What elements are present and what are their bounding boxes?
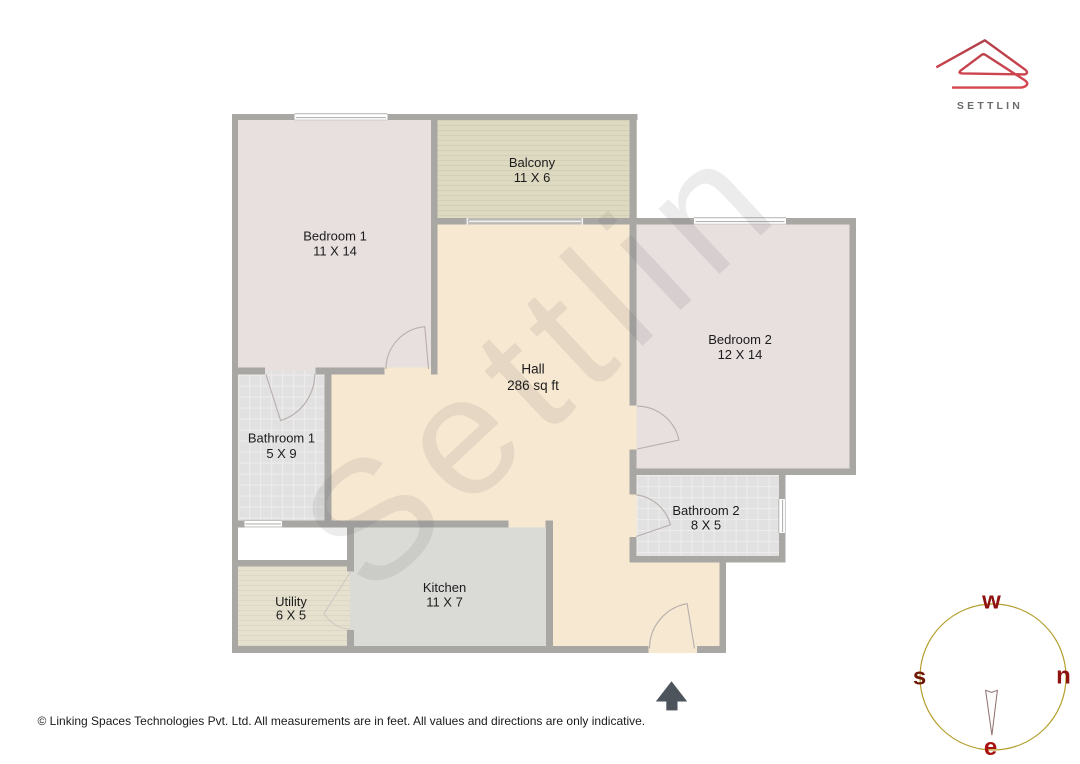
svg-text:SETTLIN: SETTLIN	[957, 100, 1023, 112]
svg-text:11 X 14: 11 X 14	[313, 244, 357, 259]
svg-text:Hall: Hall	[521, 362, 544, 377]
svg-text:© Linking Spaces Technologies: © Linking Spaces Technologies Pvt. Ltd. …	[38, 714, 646, 728]
svg-text:11 X 7: 11 X 7	[426, 595, 463, 610]
svg-text:Balcony: Balcony	[509, 155, 556, 170]
svg-text:Bathroom 2: Bathroom 2	[672, 503, 739, 518]
svg-text:8 X 5: 8 X 5	[691, 518, 721, 533]
svg-text:w: w	[981, 588, 1001, 615]
svg-text:5 X 9: 5 X 9	[266, 446, 296, 461]
svg-text:Bedroom 2: Bedroom 2	[708, 332, 772, 347]
svg-text:Bedroom 1: Bedroom 1	[303, 229, 367, 244]
svg-text:e: e	[984, 734, 997, 761]
svg-text:12 X 14: 12 X 14	[718, 347, 763, 362]
svg-text:Bathroom 1: Bathroom 1	[248, 430, 315, 445]
svg-text:n: n	[1056, 663, 1071, 690]
svg-text:s: s	[913, 664, 926, 691]
svg-text:6 X 5: 6 X 5	[276, 608, 306, 623]
svg-text:11 X 6: 11 X 6	[514, 170, 551, 185]
svg-text:Kitchen: Kitchen	[423, 580, 466, 595]
svg-text:286 sq ft: 286 sq ft	[507, 378, 559, 393]
